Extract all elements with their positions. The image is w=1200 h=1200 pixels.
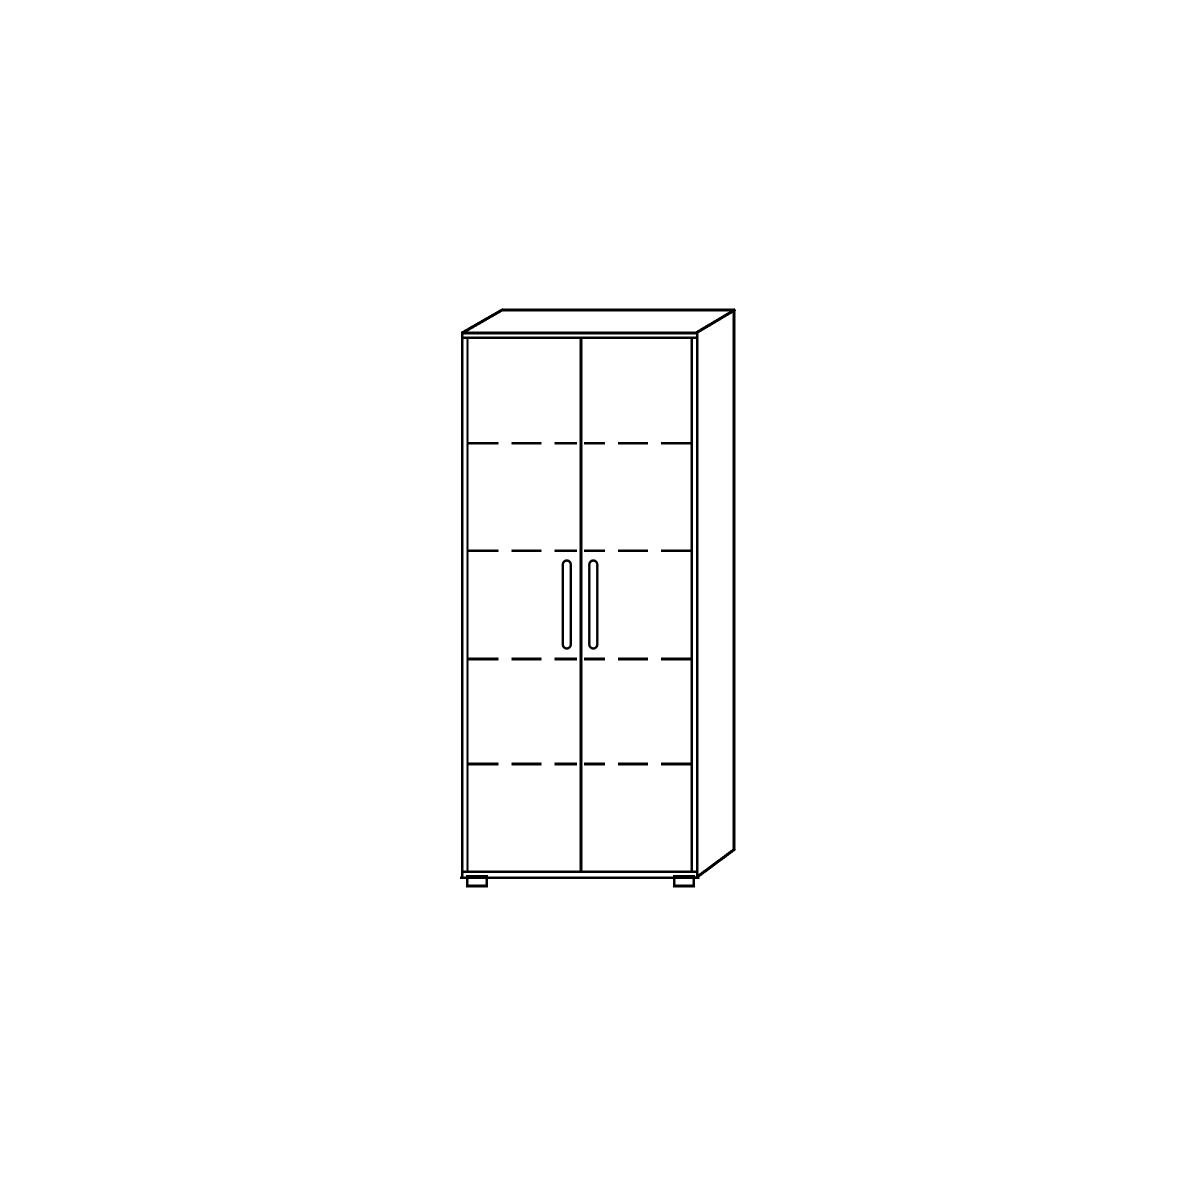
right-door-handle [589,561,597,649]
top-left-diagonal [462,310,503,334]
page-canvas [0,0,1200,1200]
left-door-handle [563,561,571,649]
top-right-diagonal [696,310,736,334]
side-bottom-diagonal [697,849,736,878]
cabinet-line-drawing [0,0,1200,1200]
